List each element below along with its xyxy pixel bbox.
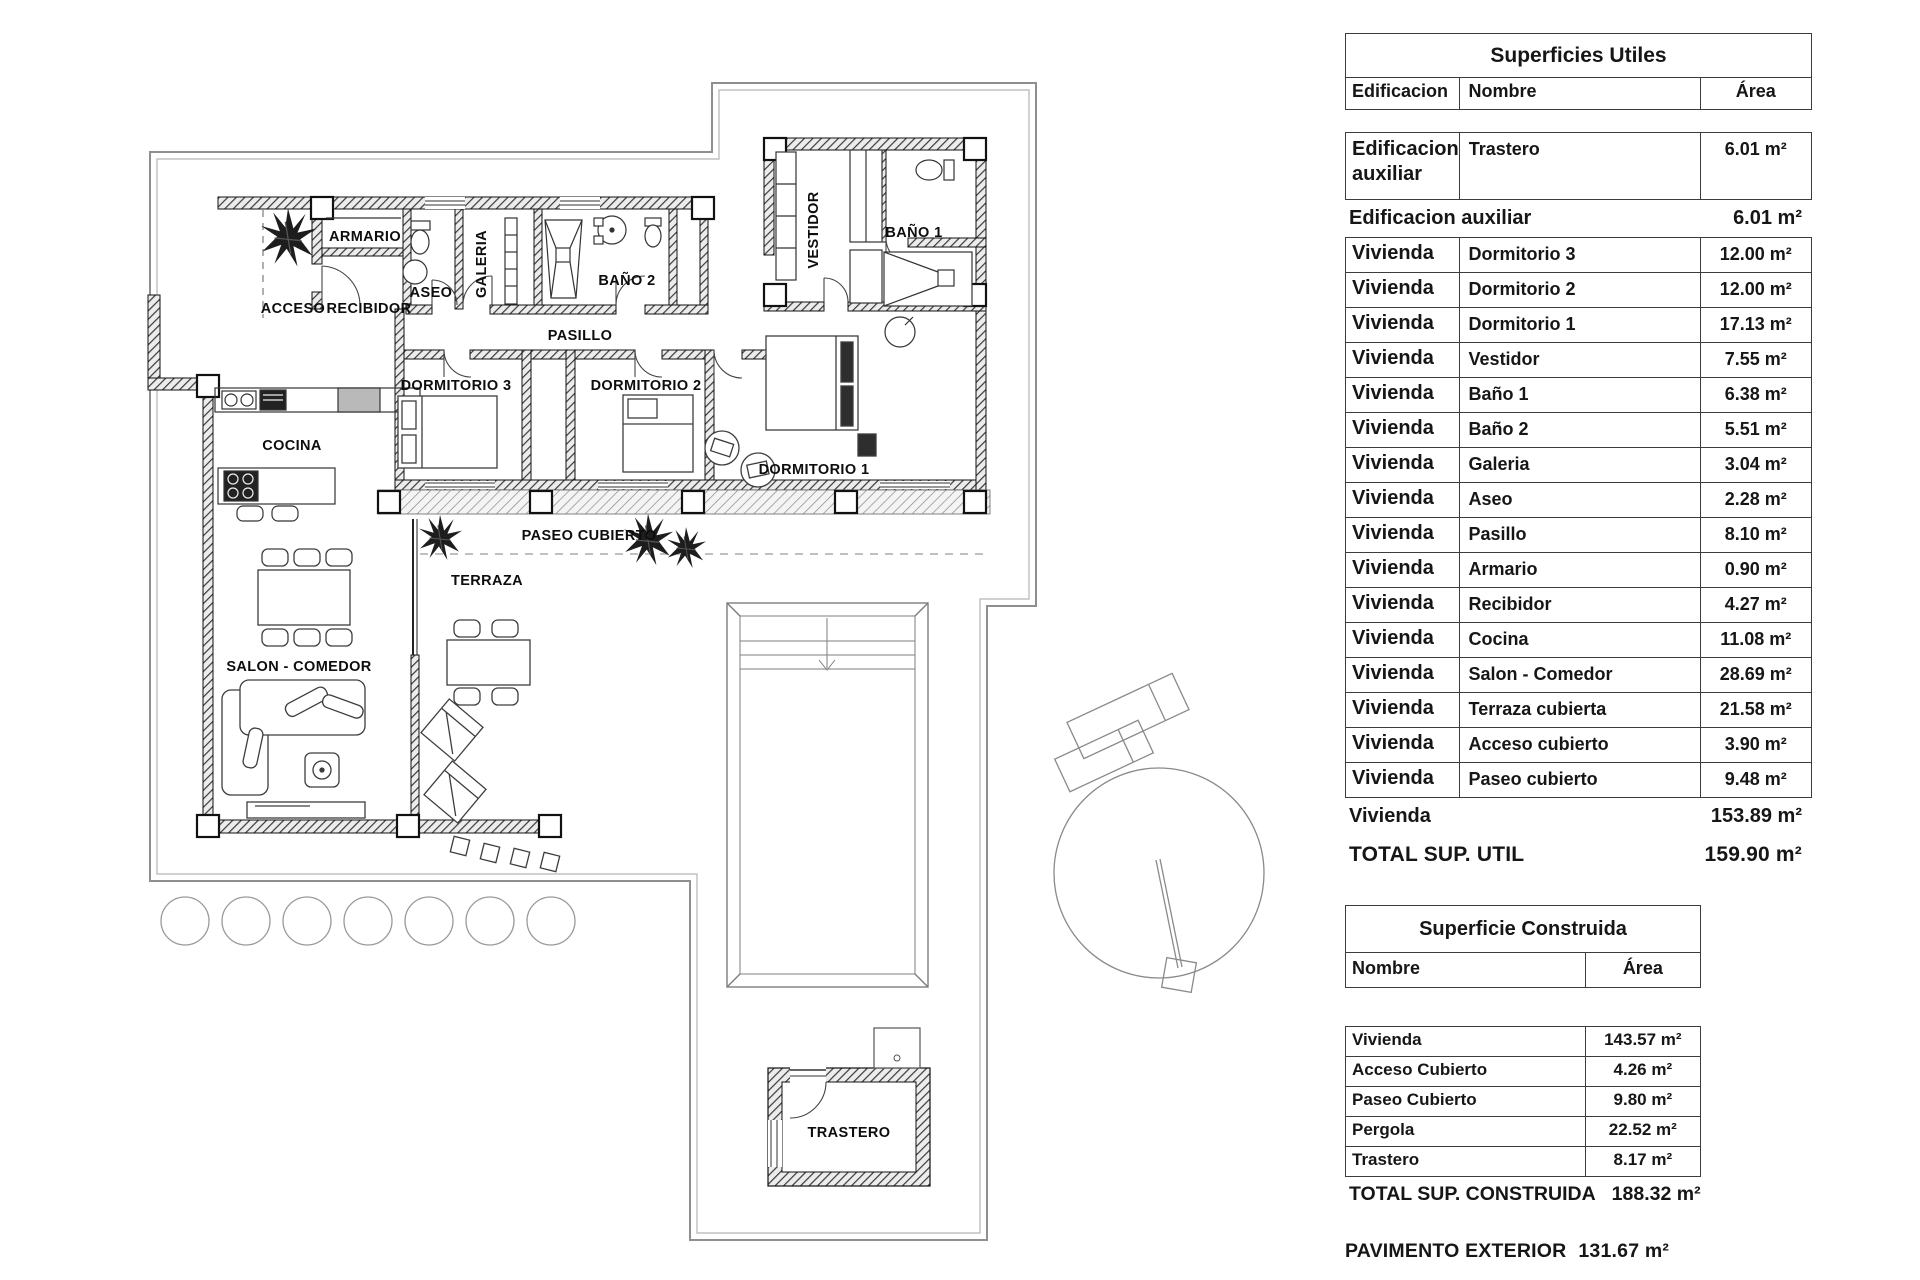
room-label-paseo-cubierto: PASEO CUBIERTO xyxy=(522,528,657,544)
bush-circles xyxy=(161,897,575,945)
total-sup-util-row: TOTAL SUP. UTIL 159.90 m² xyxy=(1345,835,1812,875)
room-label-salon-comedor: SALON - COMEDOR xyxy=(226,659,371,675)
table-row: ViviendaArmario0.90 m² xyxy=(1346,552,1811,587)
superficies-utiles-table: Superficies Utiles Edificacion Nombre Ár… xyxy=(1345,33,1812,875)
floor-plan-sheet: ARMARIOACCESORECIBIDORASEOGALERIABAÑO 2B… xyxy=(0,0,1920,1280)
room-label-armario: ARMARIO xyxy=(329,229,401,245)
room-label-ba-o-2: BAÑO 2 xyxy=(598,271,655,289)
room-label-trastero: TRASTERO xyxy=(808,1125,891,1141)
room-label-pasillo: PASILLO xyxy=(548,328,613,344)
table-row: ViviendaCocina11.08 m² xyxy=(1346,622,1811,657)
superficie-construida-table: Superficie Construida Nombre Área Vivien… xyxy=(1345,905,1701,1211)
table-row: ViviendaVestidor7.55 m² xyxy=(1346,342,1811,377)
column-header-nombre: Nombre xyxy=(1346,953,1585,987)
table-row: ViviendaPasillo8.10 m² xyxy=(1346,517,1811,552)
floor-plan-drawing: ARMARIOACCESORECIBIDORASEOGALERIABAÑO 2B… xyxy=(0,0,1330,1280)
column-header-area: Área xyxy=(1585,953,1700,987)
table-row: ViviendaDormitorio 212.00 m² xyxy=(1346,272,1811,307)
table-row: ViviendaBaño 16.38 m² xyxy=(1346,377,1811,412)
table-row: Paseo Cubierto9.80 m² xyxy=(1346,1086,1700,1116)
table-header: Nombre Área xyxy=(1345,952,1701,988)
table-row: ViviendaAcceso cubierto3.90 m² xyxy=(1346,727,1811,762)
table-row: ViviendaPaseo cubierto9.48 m² xyxy=(1346,762,1811,797)
aux-subtotal-row: Edificacion auxiliar 6.01 m² xyxy=(1345,200,1812,237)
table-row: ViviendaDormitorio 117.13 m² xyxy=(1346,307,1811,342)
table-body: Edificacion auxiliar Trastero 6.01 m² xyxy=(1345,132,1812,200)
room-label-recibidor: RECIBIDOR xyxy=(327,301,412,317)
table-row: ViviendaSalon - Comedor28.69 m² xyxy=(1346,657,1811,692)
room-label-dormitorio-1: DORMITORIO 1 xyxy=(759,462,870,478)
trastero-building xyxy=(768,1028,930,1186)
column-header-edificacion: Edificacion xyxy=(1346,78,1459,109)
room-labels: ARMARIOACCESORECIBIDORASEOGALERIABAÑO 2B… xyxy=(226,191,942,1141)
swimming-pool xyxy=(727,603,928,987)
vivienda-subtotal-row: Vivienda 153.89 m² xyxy=(1345,798,1812,835)
table-title: Superficies Utiles xyxy=(1345,33,1812,77)
table-title: Superficie Construida xyxy=(1345,905,1701,952)
table-row: ViviendaBaño 25.51 m² xyxy=(1346,412,1811,447)
room-label-cocina: COCINA xyxy=(262,438,322,454)
column-header-area: Área xyxy=(1700,78,1812,109)
table-row: Trastero8.17 m² xyxy=(1346,1146,1700,1176)
room-label-dormitorio-2: DORMITORIO 2 xyxy=(591,378,702,394)
table-body: Vivienda143.57 m²Acceso Cubierto4.26 m²P… xyxy=(1345,1026,1701,1177)
room-label-vestidor: VESTIDOR xyxy=(806,191,822,268)
pergola xyxy=(1054,673,1264,992)
table-row: ViviendaAseo2.28 m² xyxy=(1346,482,1811,517)
table-row: Edificacion auxiliar Trastero 6.01 m² xyxy=(1346,133,1811,199)
vivienda-table-body: ViviendaDormitorio 312.00 m²ViviendaDorm… xyxy=(1345,237,1812,798)
table-row: ViviendaGaleria3.04 m² xyxy=(1346,447,1811,482)
room-label-aseo: ASEO xyxy=(410,285,453,301)
table-row: Pergola22.52 m² xyxy=(1346,1116,1700,1146)
room-label-galeria: GALERIA xyxy=(474,230,490,298)
room-label-acceso: ACCESO xyxy=(261,301,325,317)
room-label-terraza: TERRAZA xyxy=(451,573,523,589)
table-row: Acceso Cubierto4.26 m² xyxy=(1346,1056,1700,1086)
table-row: ViviendaDormitorio 312.00 m² xyxy=(1346,238,1811,272)
total-sup-construida-row: TOTAL SUP. CONSTRUIDA 188.32 m² xyxy=(1345,1177,1701,1211)
table-row: Vivienda143.57 m² xyxy=(1346,1027,1700,1056)
bathroom-fixtures xyxy=(326,150,972,347)
furniture xyxy=(222,336,876,872)
table-row: ViviendaRecibidor4.27 m² xyxy=(1346,587,1811,622)
table-row: ViviendaTerraza cubierta21.58 m² xyxy=(1346,692,1811,727)
room-label-dormitorio-3: DORMITORIO 3 xyxy=(401,378,512,394)
room-label-ba-o-1: BAÑO 1 xyxy=(885,223,942,241)
table-header: Edificacion Nombre Área xyxy=(1345,77,1812,110)
pavimento-exterior-note: PAVIMENTO EXTERIOR 131.67 m² xyxy=(1345,1240,1669,1263)
column-header-nombre: Nombre xyxy=(1459,78,1700,109)
